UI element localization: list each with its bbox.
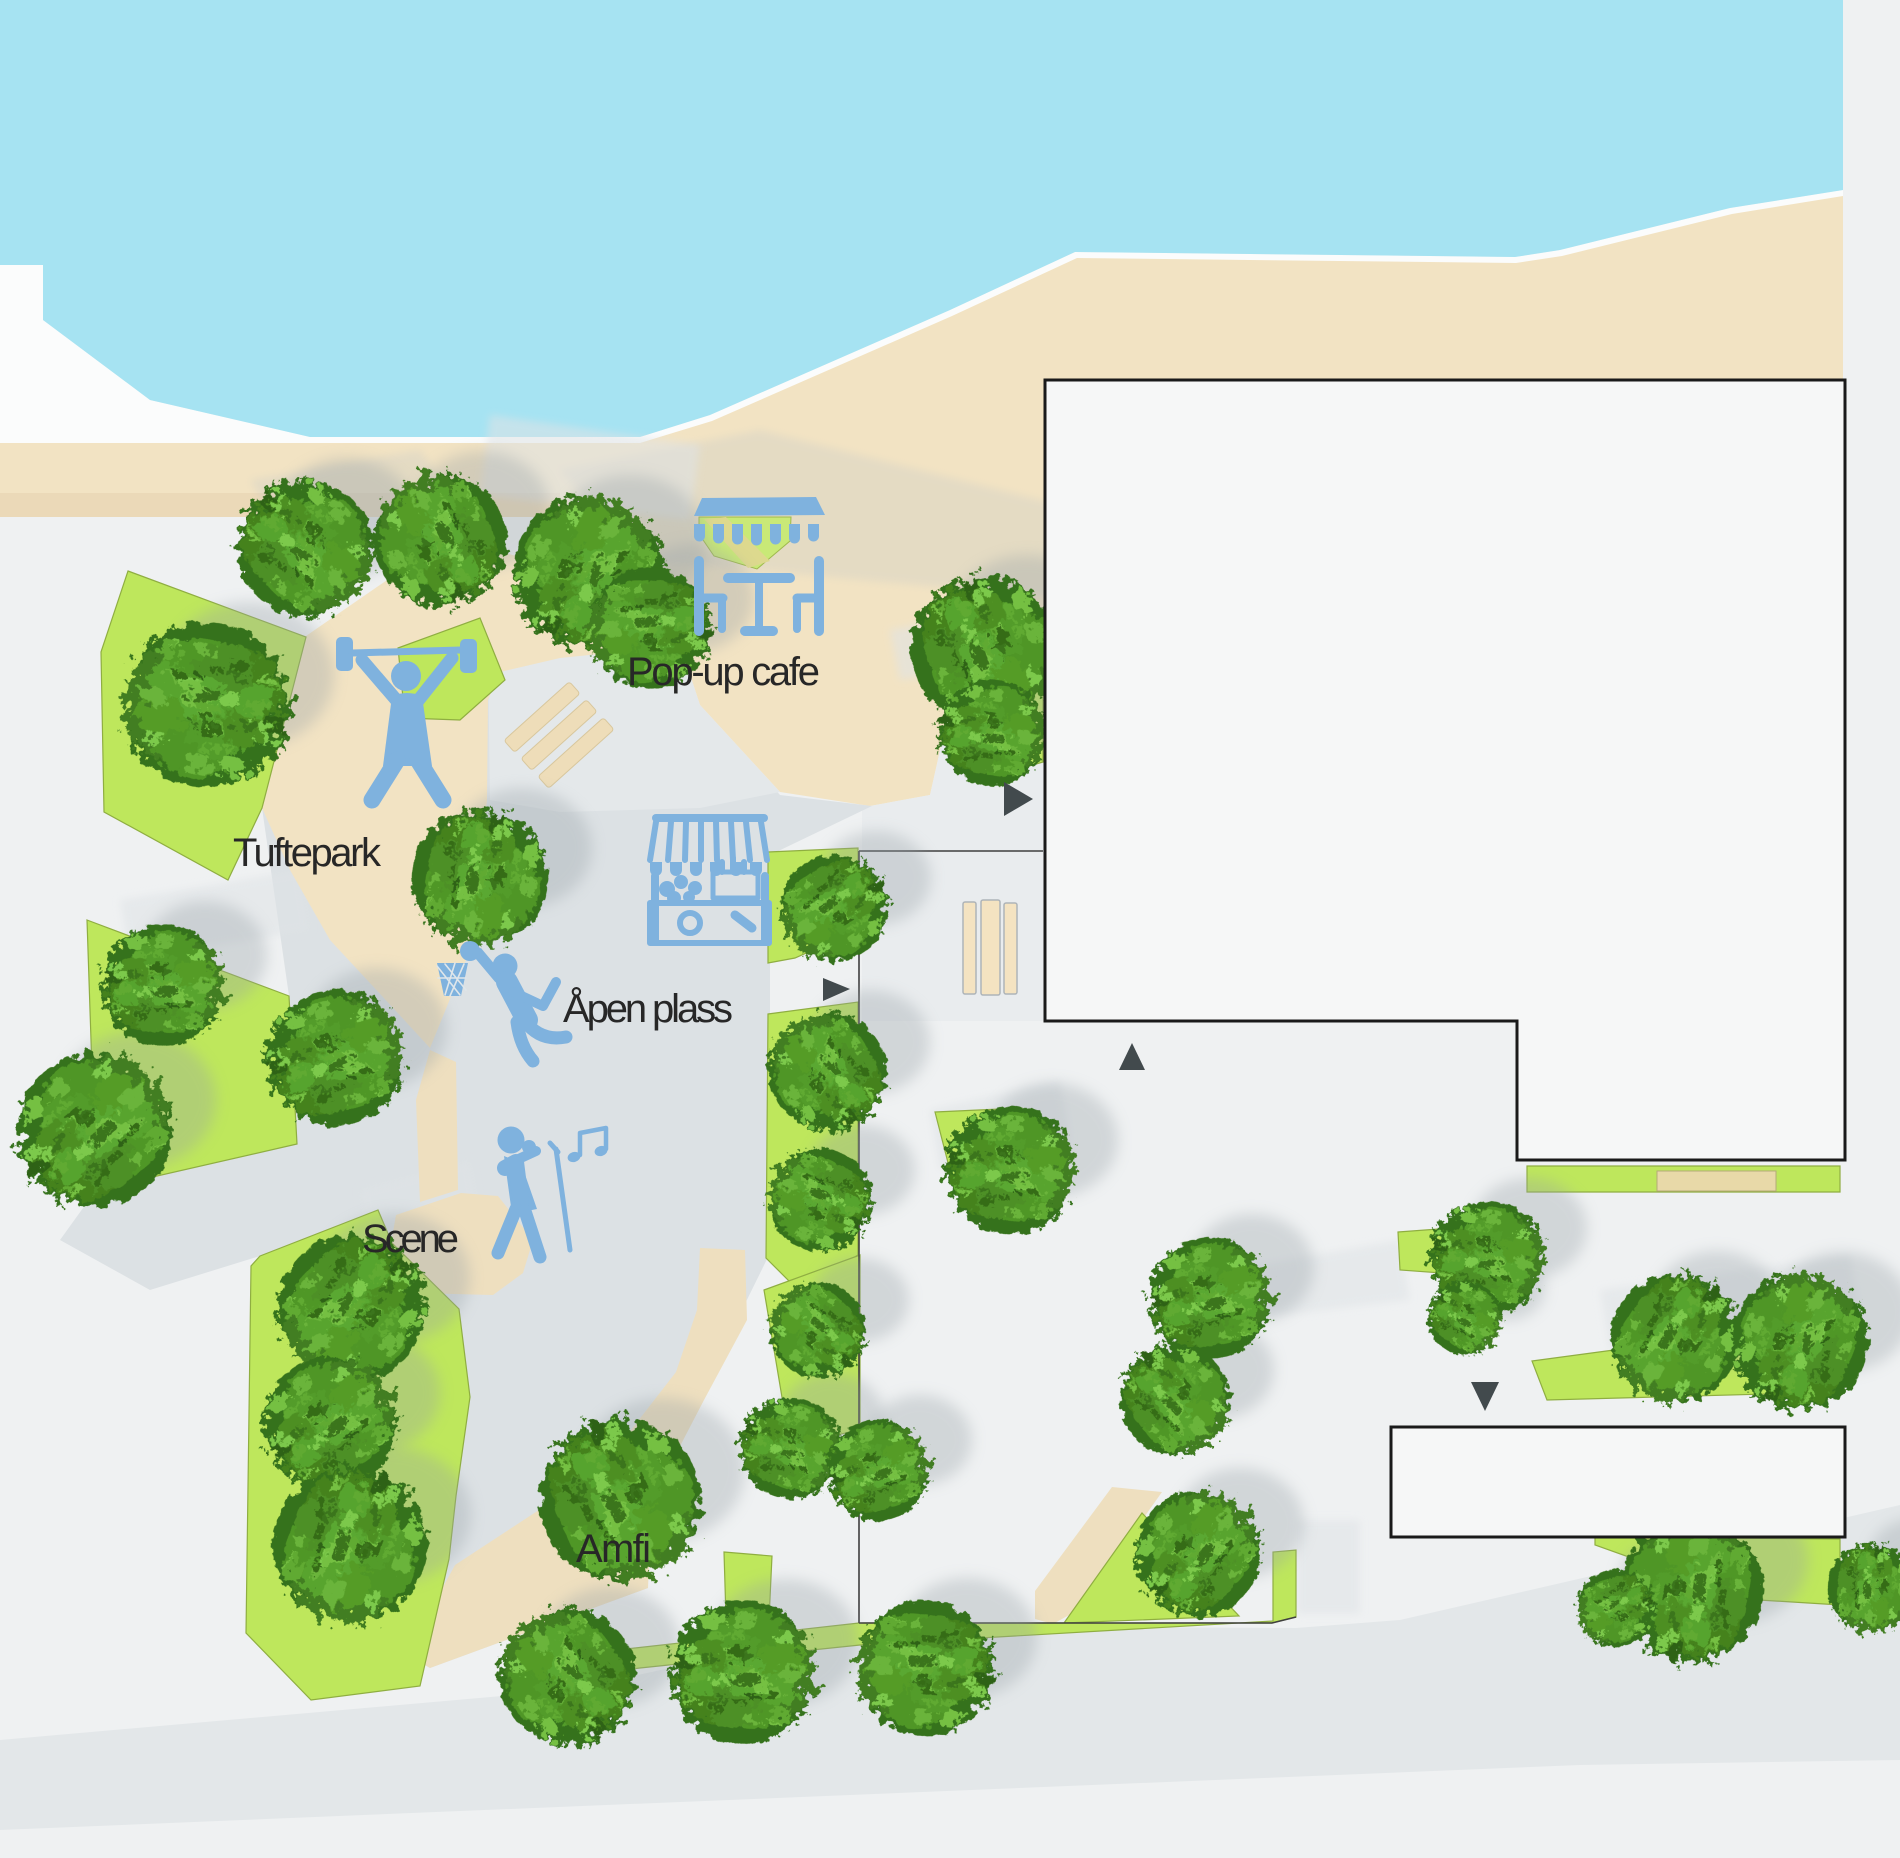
svg-text:Scene: Scene xyxy=(362,1217,459,1261)
svg-text:Pop-up cafe: Pop-up cafe xyxy=(627,650,820,694)
svg-text:Amfi: Amfi xyxy=(576,1527,651,1571)
svg-text:Tuftepark: Tuftepark xyxy=(233,831,382,875)
svg-text:Åpen plass: Åpen plass xyxy=(563,986,733,1031)
